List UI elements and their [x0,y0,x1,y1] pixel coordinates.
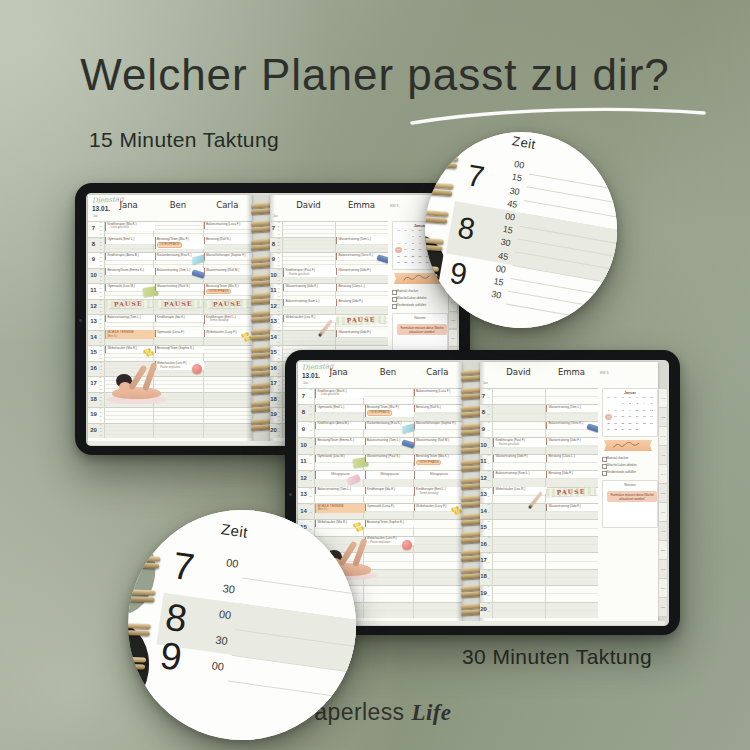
minute-label: 45 [277,388,281,390]
minute-label: 00 [277,237,281,239]
circle-content: Zeit7001530458001530459001530 [425,132,617,328]
minute-label: 30 [277,229,281,231]
checklist-item: Material checken [392,289,446,295]
appointment-entry: Beratung (Clara L.) [336,284,388,291]
pause-washi-entry: PAUSE [336,315,386,324]
hour-label: 17 [480,557,487,564]
calendar-date: 30 [626,427,633,433]
minute-label: 00 [277,423,281,425]
spiral-coil [425,238,444,245]
appointment-entry: Wassertraining (Udo F.) [336,330,388,337]
minute-label: 15 [99,303,103,305]
checklist-text: Wäsche/Laken abholen [397,296,446,300]
spiral-coil [461,585,481,591]
appointment-entry: Kindtherapie (Emil L.)→ Termin bestätigt [414,487,462,496]
minute-label: 30 [277,399,281,401]
hour-label: 14 [480,508,487,515]
note-highlight-text: Formulare müssen diese Woche aktualisier… [607,491,657,502]
calendar-date: 9 [416,241,423,247]
month-tab: AUG [658,521,668,541]
appointment-entry: Balancetraining (Tom L.) [105,315,155,322]
minute-label: 45 [99,388,103,390]
spiral-coil [251,382,271,388]
minute-label: 15 [99,334,103,336]
notes-title: Notizen [393,316,447,320]
spiral-coil [251,274,271,280]
hour-label: 7 [480,393,487,400]
spiral-coil [251,202,271,208]
entry-text: Gymnastik (Emil L.) [317,406,364,410]
minute-label: 45 [277,403,281,405]
spiral-coil [461,429,481,435]
spiral-coil [128,664,145,670]
minute-label: 45 [277,419,281,421]
hour-grid-line [480,585,598,586]
minute-label: 00 [277,361,281,363]
spiral-coil [461,573,481,579]
minute-label: 15 [99,349,103,351]
weekday-label: Mo [605,396,612,399]
spiral-coil [128,623,151,629]
calendar-date: 14 [402,247,409,253]
minute-label: 15 [99,241,103,243]
minute-label: 15 [277,318,281,320]
minute-label: 00 [487,585,491,587]
spiral-coil [251,424,271,430]
spiral-coil [251,256,271,262]
pause-washi-entry: PAUSE [546,488,596,497]
minute-label: 30 [309,446,313,448]
minute-label: 30 [277,353,281,355]
month-label: Jan [483,381,488,385]
entry-text: Beratung (Udo F.) [338,300,388,304]
minute-label: 00 [487,536,491,538]
calendar-date: 22 [409,254,416,260]
entry-text: Beratung (Udo F.) [548,472,598,476]
zoom-hour-number: 8 [444,208,489,248]
pause-washi-entry: PAUSE [204,300,251,309]
minute-label: 00 [99,330,103,332]
appointment-entry: Gymnastik (Lena F.) [155,330,205,337]
appointment-entry: Wassertraining (Udo F.) [336,268,388,275]
month-tab: APR [658,445,668,465]
appointment-entry: Beratung/Team (Mia P.)OSTEOPRAXIS [365,405,415,416]
minute-label: 00 [99,237,103,239]
minute-label: 45 [277,264,281,266]
hour-label: 16 [480,541,487,548]
entry-text: Beratung/Team (Emma K.) [107,269,154,273]
minute-label: 45 [277,357,281,359]
zoom-circle-30min: Zeit7003080030900 [128,510,356,740]
calendar-date: 24 [634,421,641,427]
appointment-entry: Beratung/Team (Mia P.)OSTEOPRAXIS [155,237,205,248]
minute-label: 00 [99,345,103,347]
spiral-coil [461,567,481,573]
minute-label: 30 [277,260,281,262]
appointment-entry: Balancetraining (Luca F.) [414,389,462,396]
minute-label: 45 [99,295,103,297]
weekday-label: Mo [395,229,402,232]
label-30min: 30 Minuten Taktung [462,645,652,669]
minute-label: 45 [277,372,281,374]
appointment-entry: Beratung (Ralf S.) [204,237,252,244]
appointment-entry: Wassertraining (Udo F.) [546,504,598,511]
minute-label: 30 [277,322,281,324]
hour-label: 15 [88,349,99,356]
entry-text: Balancetraining (Sam L.) [495,472,545,476]
highlight-pill: OSTEOPRAXIS [206,289,231,294]
hour-label: 20 [270,427,277,434]
calendar-date: 4 [641,401,648,407]
calendar-date: 6 [395,241,402,247]
calendar-date: 18 [641,414,648,420]
hour-label: 10 [270,272,277,279]
minute-label: 00 [487,552,491,554]
calendar-date: 29 [409,260,416,266]
minute-label: 45 [99,310,103,312]
hour-label: 17 [88,380,99,387]
entry-note: → Rechte geschickt [285,273,335,276]
minute-label: 00 [277,283,281,285]
calendar-date: 13 [395,247,402,253]
spiral-coil [128,697,140,703]
minute-label: 30 [487,479,491,481]
minute-label: 30 [487,594,491,596]
spiral-coil [251,238,271,244]
spiral-coil [129,596,155,602]
hour-label: 20 [88,427,99,434]
minute-label: 00 [99,361,103,363]
hour-label: 12 [88,303,99,310]
appointment-entry: Wassertraining (Tom L.) [546,405,598,412]
spiral-coil [251,406,271,412]
checklist-item: Wäsche/Laken abholen [392,296,446,302]
minute-label: 30 [309,528,313,530]
week-label: KW 3 [600,371,609,375]
minute-label: 00 [487,437,491,439]
minute-label: 00 [309,421,313,423]
entry-text: Wassertraining (Udo F.) [548,439,598,443]
minute-label: 30 [99,229,103,231]
minute-label: 15 [99,256,103,258]
spiral-coil [461,411,481,417]
entry-note: → Links geschickt [107,226,154,229]
minute-label: 00 [487,388,491,390]
minute-label: 00 [99,299,103,301]
appointment-entry: Wassertraining (Udo F.) [493,455,547,462]
calendar-date: 27 [395,260,402,266]
spiral-coil [461,477,481,483]
minute-label: 30 [487,462,491,464]
pause-washi-entry: PAUSE [154,300,201,309]
calendar-date: 19 [648,414,655,420]
column-header-name: Carla [203,200,252,210]
checklist-text: Material checken [397,289,446,293]
minute-label: 00 [99,252,103,254]
spiral-coil [251,400,271,406]
appointment-entry: Balancetraining (Sam L.) [283,299,337,306]
column-header-name: David [282,200,335,210]
minute-label: 30 [99,368,103,370]
spiral-coil [461,531,481,537]
spiral-coil [461,459,481,465]
entry-text: Wassertraining (Udo F.) [548,505,598,509]
hour-label: 7 [270,225,277,232]
entry-note: (Ben S.) [107,335,154,338]
minute-label: 15 [277,427,281,429]
hour-label: 18 [270,396,277,403]
minute-label: 00 [99,268,103,270]
spiral-coil [425,210,449,217]
hour-label: 19 [270,411,277,418]
minute-label: 00 [309,437,313,439]
minute-label: 00 [277,376,281,378]
spiral-coil [251,262,271,268]
hour-label: 10 [88,272,99,279]
column-header-name: Ben [363,367,412,377]
background-sliver [128,530,160,617]
minute-label: 45 [99,248,103,250]
spiral-coil [251,352,271,358]
month-label: Jan [93,214,98,218]
washi-script-squiggle [604,440,652,451]
minute-label: 15 [277,272,281,274]
spiral-coil [251,364,271,370]
calendar-date: 7 [612,408,619,414]
spiral-coil [251,388,271,394]
calendar-date: 28 [402,260,409,266]
calendar-date: 9 [626,408,633,414]
minute-label: 30 [487,528,491,530]
entry-text: Kindtherapie (Anna B.) [317,422,364,426]
spiral-coil [461,501,481,507]
hour-label: 8 [480,409,487,416]
minute-label: 00 [277,268,281,270]
calendar-date: 2 [416,234,423,240]
minute-label: 45 [99,372,103,374]
entry-text: Wassertraining (Udo F.) [338,331,388,335]
minute-label: 30 [99,430,103,432]
minute-label: 45 [99,341,103,343]
appointment-entry: Beratung/Team (Emma K.) [315,438,365,445]
spiral-coil [461,549,481,555]
hour-label: 14 [270,334,277,341]
minute-label: 00 [487,421,491,423]
minute-label: 00 [277,392,281,394]
calendar-date: 26 [648,421,655,427]
column-header-name: Carla [413,367,462,377]
minute-label: 45 [99,357,103,359]
notes-box: NotizenFormulare müssen diese Woche aktu… [602,480,658,528]
entry-text: Beratung/Team (Emma K.) [317,439,364,443]
appointment-entry: Wassertraining (Tom L.) [336,237,388,244]
notes-title: Notizen [603,483,657,487]
weekday-label: So [648,396,655,399]
appointment-entry: Beratung/Team (Mia K.)OSTEOPRAXIS [204,284,252,295]
minute-label: 30 [487,396,491,398]
checklist-text: Restbestände auffüllen [607,470,656,474]
weekday-label: Do [626,396,633,399]
minute-label: 00 [487,520,491,522]
minute-label: 30 [99,260,103,262]
calendar-date: 16 [416,247,423,253]
minute-label: 30 [277,415,281,417]
minute-label: 30 [99,384,103,386]
minute-label: 15 [277,411,281,413]
entry-text: Beratung/Team (Sophie K.) [157,347,204,351]
minute-label: 00 [309,470,313,472]
calendar-date: 8 [409,241,416,247]
spiral-coil [461,495,481,501]
appointment-entry: Beratung/Team (Sophie K.) [155,346,205,353]
minute-label: 45 [99,326,103,328]
spiral-coil [251,316,271,322]
calendar-date: 2 [626,401,633,407]
minute-label: 45 [99,403,103,405]
minute-label: 15 [277,380,281,382]
hour-label: 11 [298,458,309,465]
checklist-item: Restbestände auffüllen [392,303,446,309]
spiral-coil [461,441,481,447]
minute-label: 30 [277,368,281,370]
hour-label: 12 [270,303,277,310]
month-tab: SEP [658,540,668,560]
minute-label: 00 [99,407,103,409]
hour-label: 16 [88,365,99,372]
minute-label: 00 [277,345,281,347]
minute-label: 15 [277,225,281,227]
minute-label: 15 [99,396,103,398]
hour-grid-line [270,345,388,346]
hour-label: 16 [270,365,277,372]
appointment-entry: Balancetraining (Luca F.) [204,222,252,229]
minute-label: 30 [487,413,491,415]
entry-text: Beratung (Clara L.) [548,455,598,459]
calendar-date: 8 [619,408,626,414]
appointment-entry: Manuelletherapie (Sophie F.) [204,253,252,260]
hour-label: 19 [480,590,487,597]
calendar-date: 1 [619,401,626,407]
minute-label: 15 [99,287,103,289]
hour-label: 18 [480,573,487,580]
month-tab: JUL [658,502,668,522]
minute-label: 45 [99,233,103,235]
hour-label: 8 [270,241,277,248]
appointment-entry: Kindtherapie (Emil L.)→ Termin bestätigt [204,315,252,324]
spiral-coil [461,591,481,597]
minute-label: 00 [277,330,281,332]
calendar-date: 10 [634,408,641,414]
pause-washi-entry: PAUSE [105,300,152,309]
spiral-coil [133,563,159,569]
appointment-entry: Wassertraining (Udo F.) [546,438,598,445]
spiral-coil [461,483,481,489]
minute-label: 00 [99,221,103,223]
minute-label: 30 [309,511,313,513]
appointment-entry: Wassertraining (Udo F.) [283,284,337,291]
minute-label: 30 [99,353,103,355]
calendar-date: 15 [409,247,416,253]
hour-label: 9 [298,426,309,433]
tablet-camera-icon [289,493,292,496]
spiral-coil [251,418,271,424]
minute-label: 30 [309,396,313,398]
hour-grid-line [480,602,598,603]
week-label: KW 3 [390,204,399,208]
spiral-coil [128,690,141,696]
planner-page-left: Dienstag13.01.JanJanaBenCarla70015304580… [88,195,252,442]
entry-text: Wassertraining (Paul S.) [367,455,414,459]
hour-label: 15 [270,349,277,356]
highlight-pill: OSTEOPRAXIS [367,410,392,415]
checklist-item: Wäsche/Laken abholen [602,463,656,469]
minute-label: 30 [99,415,103,417]
minute-label: 30 [487,446,491,448]
minute-label: 00 [99,392,103,394]
minute-label: 15 [99,365,103,367]
month-tab: JAN [658,388,668,408]
hour-grid-line [88,423,252,424]
minute-label: 00 [487,602,491,604]
minute-label: 15 [99,411,103,413]
hour-label: 9 [88,256,99,263]
minute-label: 30 [277,337,281,339]
minute-label: 30 [99,322,103,324]
column-header-name: Emma [545,367,598,377]
zoom-hour-number: 7 [161,543,207,591]
brand-logo-italic: Life [411,700,451,725]
calendar-date: 29 [619,427,626,433]
sidebar-panel: JanuarMoDiMiDoFrSaSo12345678910111213141… [602,388,656,588]
minute-label: 30 [99,244,103,246]
minute-label: 45 [277,326,281,328]
calendar-date: 20 [395,254,402,260]
spiral-binding [252,195,270,442]
minute-label: 00 [487,405,491,407]
calendar-date: 11 [641,408,648,414]
minute-label: 30 [277,291,281,293]
minute-label: 00 [277,252,281,254]
month-tab: MAI [658,464,668,484]
column-header-name: Ben [153,200,202,210]
spiral-coil [461,369,481,375]
minute-label: 00 [99,283,103,285]
hour-label: 9 [270,256,277,263]
checklist-item: Restbestände auffüllen [602,470,656,476]
spiral-coil [128,657,146,663]
entry-text: Beratung/Team (Sophie K.) [367,521,414,525]
entry-text: Gymnastik (Lena F.) [157,331,204,335]
hour-grid-line [88,299,252,300]
hour-grid-line [480,519,598,520]
spiral-coil [461,603,481,609]
appointment-entry: Wassertraining (Ralf M.) [414,438,462,445]
calendar-date: 16 [626,414,633,420]
minute-label: 00 [277,221,281,223]
entry-text: Wirbelsäulen (Lea R.) [495,488,545,492]
calendar-date: 1 [409,234,416,240]
weekday-label: Mi [619,396,626,399]
hour-grid-line [480,552,598,553]
spiral-coil [461,465,481,471]
entry-text: Beratung (Clara L.) [338,285,388,289]
hour-label: 7 [298,393,309,400]
hour-label: 20 [480,606,487,613]
spiral-coil [425,244,443,251]
spiral-coil [461,447,481,453]
entry-text: Wassertraining (Udo F.) [338,269,388,273]
calendar-date: 7 [402,241,409,247]
